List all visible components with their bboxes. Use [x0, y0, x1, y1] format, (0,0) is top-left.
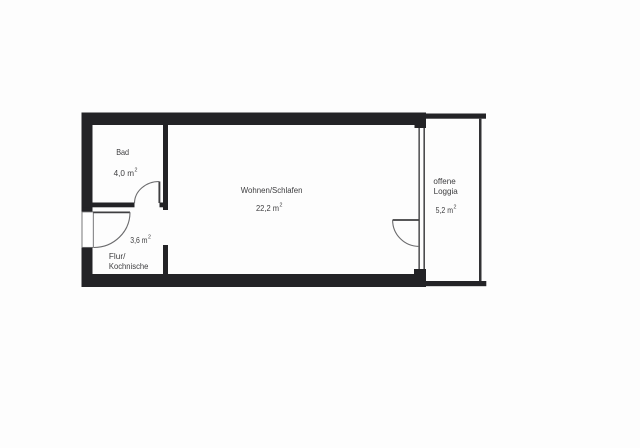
svg-text:4,0 m2: 4,0 m2 [114, 168, 138, 179]
svg-text:Bad: Bad [116, 147, 129, 157]
svg-text:22,2 m2: 22,2 m2 [256, 203, 283, 214]
svg-text:Loggia: Loggia [434, 186, 459, 196]
svg-text:Kochnische: Kochnische [109, 261, 149, 271]
svg-text:Flur/: Flur/ [109, 251, 126, 261]
svg-text:offene: offene [433, 176, 456, 186]
svg-text:Wohnen/Schlafen: Wohnen/Schlafen [241, 185, 303, 195]
